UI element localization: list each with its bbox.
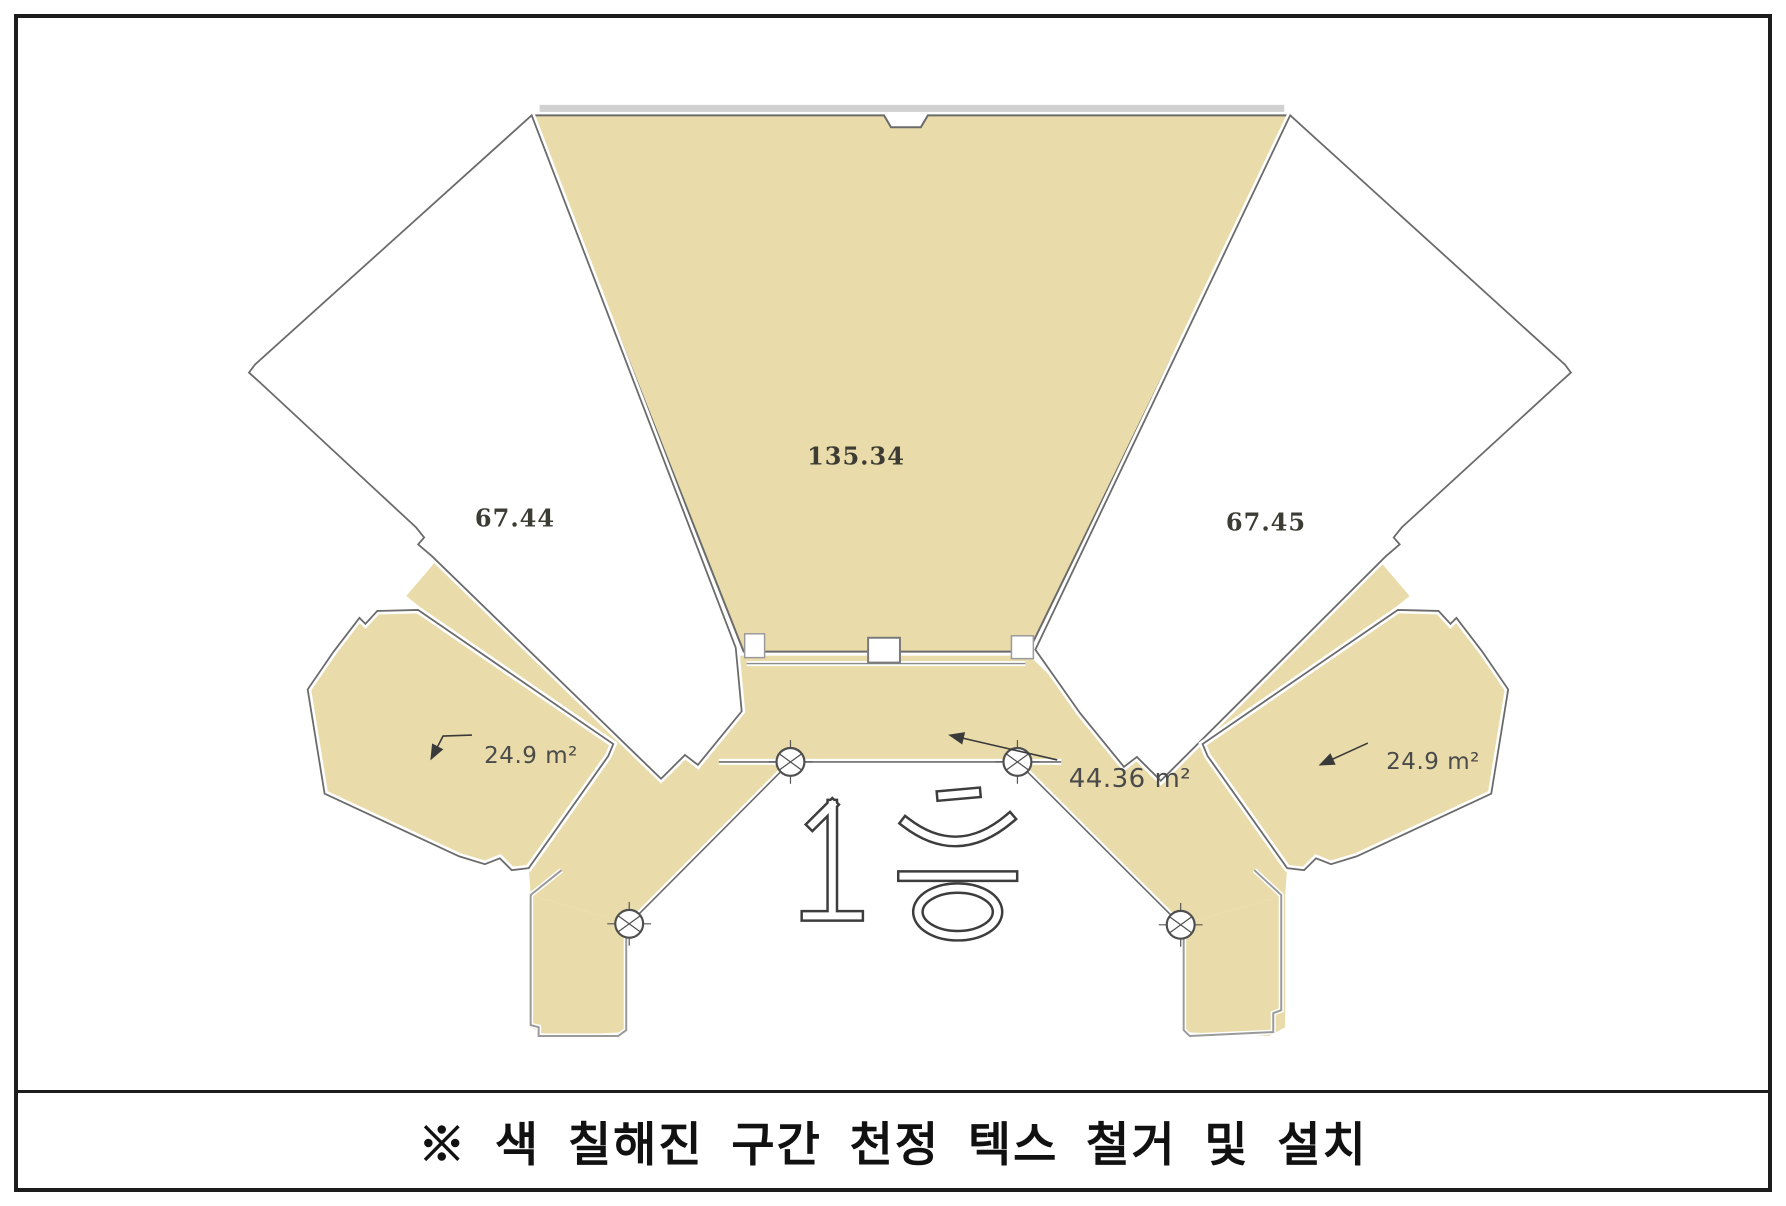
corner-notch-left: [745, 634, 765, 658]
caption-text: ※ 색 칠해진 구간 천정 텍스 철거 및 설치: [418, 1106, 1368, 1175]
floor-plan-sheet: 135.34 67.44 67.45 44.36 m² 24.9 m² 24.9…: [0, 0, 1786, 1206]
floor-plan-drawing: [18, 18, 1768, 1188]
sheet-border: 135.34 67.44 67.45 44.36 m² 24.9 m² 24.9…: [14, 14, 1772, 1192]
floor-label-glyphs: [806, 793, 1012, 936]
door-opening: [868, 638, 900, 663]
caption-band: ※ 색 칠해진 구간 천정 텍스 철거 및 설치: [18, 1090, 1768, 1188]
corner-notch-right: [1011, 636, 1033, 659]
